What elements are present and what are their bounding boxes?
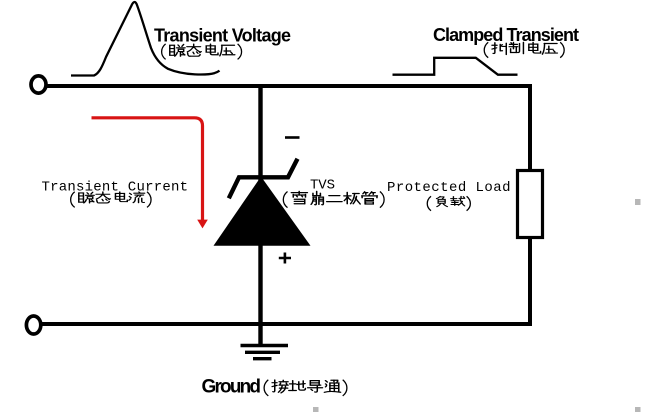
svg-text:Ground: Ground xyxy=(202,377,262,398)
svg-text:TVS: TVS xyxy=(310,178,335,194)
svg-text:Protected Load: Protected Load xyxy=(387,180,511,196)
svg-text:Clamped Transient: Clamped Transient xyxy=(433,25,579,45)
svg-text:Transient Voltage: Transient Voltage xyxy=(154,26,291,46)
